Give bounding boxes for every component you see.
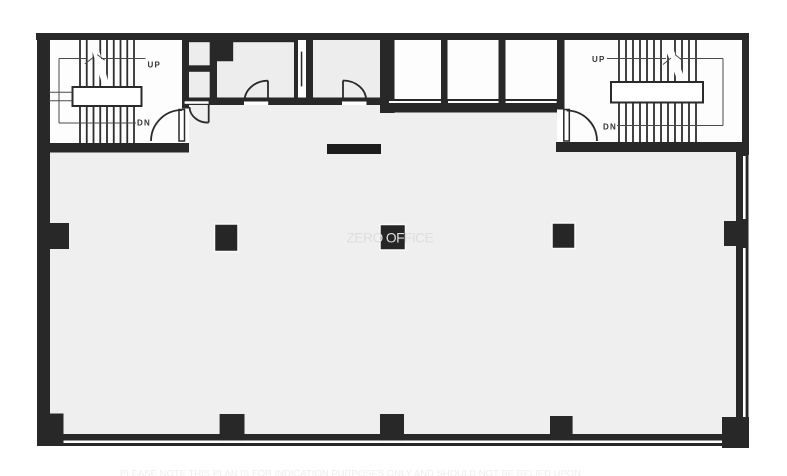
svg-text:UP: UP <box>592 55 606 64</box>
svg-text:PLEASE NOTE THIS PLAN IS FOR I: PLEASE NOTE THIS PLAN IS FOR INDICATION … <box>120 469 581 476</box>
svg-text:ZERO OFFICE: ZERO OFFICE <box>347 231 434 246</box>
svg-text:UP: UP <box>148 61 162 70</box>
svg-text:DN: DN <box>137 119 151 128</box>
svg-text:DN: DN <box>603 123 617 132</box>
